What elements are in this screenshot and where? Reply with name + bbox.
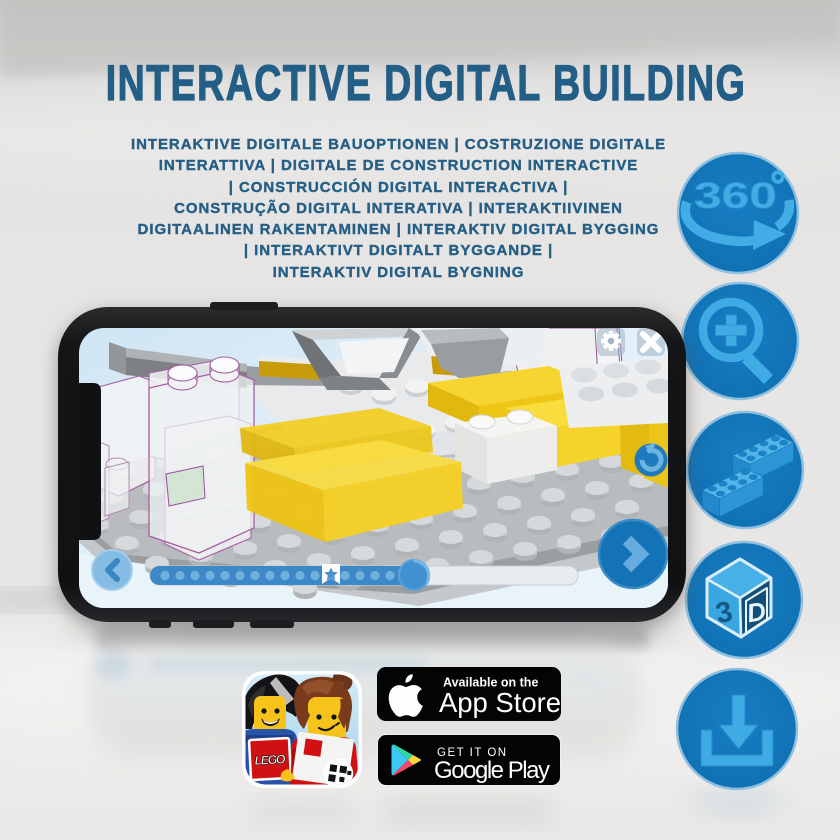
svg-text:360: 360 (694, 176, 777, 216)
svg-text:LEGO: LEGO (254, 752, 286, 768)
svg-text:App Store: App Store (439, 687, 561, 718)
svg-text:Google Play: Google Play (434, 757, 550, 784)
